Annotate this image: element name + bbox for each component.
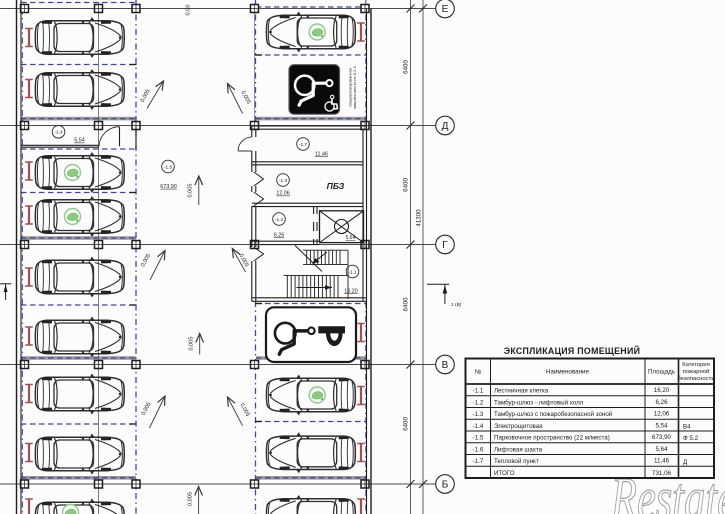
- svg-text:6400: 6400: [403, 297, 410, 311]
- svg-text:-1.1: -1.1: [473, 388, 484, 395]
- svg-text:Парковочное пространство (22 м: Парковочное пространство (22 м/места): [494, 435, 610, 442]
- svg-text:Тепловой пункт: Тепловой пункт: [494, 458, 539, 465]
- svg-text:0,00: 0,00: [186, 5, 192, 16]
- svg-text:5,54: 5,54: [655, 422, 668, 429]
- svg-text:1 (В): 1 (В): [451, 302, 462, 308]
- svg-text:Лестничная клетка: Лестничная клетка: [494, 388, 549, 395]
- svg-text:-1.7: -1.7: [299, 142, 308, 148]
- svg-text:пожарной: пожарной: [683, 368, 710, 375]
- svg-text:В4: В4: [683, 423, 691, 430]
- svg-text:Площадь: Площадь: [648, 369, 675, 376]
- svg-text:-1.5: -1.5: [164, 164, 173, 170]
- svg-text:-1.2: -1.2: [275, 217, 284, 223]
- svg-text:безопасности: безопасности: [677, 376, 714, 382]
- svg-text:№: №: [475, 369, 482, 376]
- svg-text:-1.4: -1.4: [473, 423, 484, 430]
- svg-text:5,64: 5,64: [655, 446, 668, 453]
- svg-text:0,005: 0,005: [188, 184, 194, 198]
- svg-text:0,005: 0,005: [189, 337, 195, 351]
- svg-text:5.64: 5.64: [346, 235, 356, 241]
- svg-text:5.54: 5.54: [74, 138, 85, 144]
- svg-text:6,26: 6,26: [655, 399, 668, 406]
- svg-text:16.20: 16.20: [344, 288, 358, 294]
- svg-text:-1.1: -1.1: [348, 269, 357, 275]
- svg-text:Категория: Категория: [682, 362, 710, 368]
- svg-text:11.46: 11.46: [315, 151, 328, 157]
- svg-text:16,20: 16,20: [654, 387, 670, 394]
- svg-text:Наименование: Наименование: [546, 369, 589, 376]
- svg-text:673.90: 673.90: [160, 184, 177, 190]
- svg-text:-1.7: -1.7: [473, 458, 484, 465]
- svg-text:ИТОГО: ИТОГО: [494, 470, 515, 477]
- svg-text:Ф 5.2: Ф 5.2: [683, 435, 699, 442]
- svg-text:731,06: 731,06: [652, 470, 671, 477]
- svg-text:6400: 6400: [403, 60, 410, 74]
- svg-text:Тамбур-шлюз - лифтовый холл: Тамбур-шлюз - лифтовый холл: [494, 399, 584, 406]
- svg-text:машино место по 5.2.4: машино место по 5.2.4: [352, 66, 357, 109]
- svg-text:6.26: 6.26: [274, 232, 285, 238]
- svg-text:6400: 6400: [403, 417, 410, 431]
- svg-text:0,005: 0,005: [188, 492, 194, 506]
- svg-text:Д: Д: [442, 121, 449, 132]
- svg-text:-1.4: -1.4: [54, 130, 63, 136]
- svg-text:Электрощитовая: Электрощитовая: [494, 423, 543, 430]
- svg-text:6400: 6400: [403, 178, 410, 192]
- svg-text:В: В: [442, 360, 449, 371]
- svg-text:12,06: 12,06: [654, 411, 670, 418]
- svg-text:-1.3: -1.3: [279, 178, 288, 184]
- svg-text:Е: Е: [442, 4, 449, 15]
- svg-text:12.06: 12.06: [276, 191, 290, 197]
- svg-text:11,46: 11,46: [654, 458, 670, 465]
- svg-text:41300: 41300: [416, 209, 423, 227]
- svg-text:ЭКСПЛИКАЦИЯ ПОМЕЩЕНИЙ: ЭКСПЛИКАЦИЯ ПОМЕЩЕНИЙ: [504, 345, 640, 356]
- svg-text:-1.6: -1.6: [473, 446, 484, 453]
- svg-text:ПБЗ: ПБЗ: [327, 181, 345, 191]
- svg-text:Б: Б: [442, 480, 449, 491]
- svg-text:673,90: 673,90: [652, 434, 671, 441]
- svg-text:Лифтовая шахта: Лифтовая шахта: [494, 446, 543, 453]
- svg-text:-1.3: -1.3: [473, 411, 484, 418]
- svg-text:-1.2: -1.2: [473, 399, 484, 406]
- svg-text:Тамбур-шлюз с пожаробезопасной: Тамбур-шлюз с пожаробезопасной зоной: [494, 411, 613, 418]
- svg-text:Г: Г: [442, 240, 448, 251]
- svg-text:-1.5: -1.5: [473, 435, 484, 442]
